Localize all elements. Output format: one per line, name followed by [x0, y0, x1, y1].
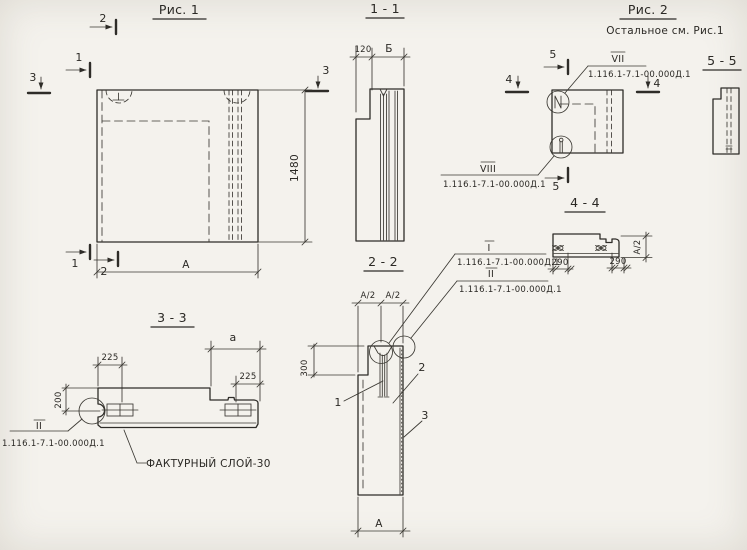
- s33-outline: [79, 388, 258, 428]
- s22-dimension-bottom: А: [351, 497, 410, 537]
- s22-callout-2: 2: [418, 361, 425, 374]
- s11-dim-120: 120: [354, 45, 371, 55]
- lifting-loop-zone-left: [106, 90, 132, 103]
- mark-5-top: 5: [549, 48, 556, 61]
- section-4-4: 4 - 4 290 290 А/2: [389, 195, 652, 343]
- mark-1-bottom: 1: [71, 257, 78, 270]
- fig2-label-vii: VII 1.116.1-7.1-00.000Д.1: [565, 52, 691, 93]
- s33-title: 3 - 3: [157, 310, 187, 325]
- mark-4-left: 4: [505, 73, 512, 86]
- fig1-title: Рис. 1: [159, 2, 199, 17]
- s11-outline: [356, 89, 404, 241]
- s22-dim-a2-left: А/2: [361, 291, 376, 301]
- s44-anchor-right: [596, 246, 607, 251]
- i-number: I: [487, 243, 490, 254]
- s55-title: 5 - 5: [707, 53, 737, 68]
- fig1-dimensions: 1480 А: [94, 87, 312, 278]
- fig2-title: Рис. 2: [628, 2, 668, 17]
- ii-number: II: [488, 269, 494, 280]
- lifting-loop-zone-right: [224, 90, 250, 103]
- s33-note: ФАКТУРНЫЙ СЛОЙ-30: [124, 430, 271, 470]
- figure-1: Рис. 1 2 1 3 3 1 2: [28, 2, 330, 278]
- s33-ii-number: II: [36, 421, 42, 432]
- s44-label-ii: II 1.116.1-7.1-00.000Д.1: [411, 268, 562, 338]
- section-3-3: 3 - 3 а 225 225 200: [2, 310, 271, 470]
- s33-dim-225-left: 225: [101, 353, 118, 363]
- mark-5-bottom: 5: [552, 180, 559, 193]
- s22-dim-300: 300: [300, 359, 310, 376]
- fig2-label-viii: VIII 1.116.1-7.1-00.000Д.1: [441, 156, 554, 190]
- s22-callout-3: 3: [421, 409, 428, 422]
- s44-title: 4 - 4: [570, 195, 600, 210]
- section-2-2: 2 - 2 А/2 А/2 300: [300, 254, 429, 537]
- s22-callouts: 1 2 3: [334, 361, 428, 437]
- s33-anchor-right: [220, 404, 256, 416]
- i-code: 1.116.1-7.1-00.000Д.1: [457, 258, 560, 268]
- fig2-panel: [547, 90, 623, 158]
- drawing-canvas: Рис. 1 2 1 3 3 1 2: [0, 0, 747, 550]
- s22-dimensions-top: А/2 А/2 300: [300, 291, 409, 378]
- s33-dim-225-right: 225: [239, 372, 256, 382]
- s44-dim-a2: А/2: [633, 240, 643, 255]
- drawing-sheet: Рис. 1 2 1 3 3 1 2: [0, 0, 747, 550]
- s11-title: 1 - 1: [370, 1, 400, 16]
- vii-code: 1.116.1-7.1-00.000Д.1: [588, 70, 691, 80]
- vii-number: VII: [611, 54, 624, 65]
- s22-dim-width: А: [375, 518, 383, 530]
- fig1-panel: [97, 90, 258, 242]
- mark-3-right: 3: [322, 64, 329, 77]
- s33-anchor-left: [102, 404, 138, 416]
- mark-2-top: 2: [99, 12, 106, 25]
- mark-1-top: 1: [75, 51, 82, 64]
- viii-code: 1.116.1-7.1-00.000Д.1: [443, 180, 546, 190]
- ii-code: 1.116.1-7.1-00.000Д.1: [459, 285, 562, 295]
- s11-dim-B: Б: [385, 43, 393, 55]
- section-5-5: 5 - 5: [703, 53, 741, 154]
- s44-dim-290-right: 290: [609, 257, 626, 267]
- mark-3-left: 3: [29, 71, 36, 84]
- s33-dim-a: а: [229, 331, 236, 344]
- s22-detail-circle-right: [393, 336, 415, 358]
- s33-dim-200: 200: [54, 391, 64, 408]
- fig2-subtitle: Остальное см. Рис.1: [606, 25, 724, 37]
- section-1-1: 1 - 1 120 Б: [350, 1, 410, 241]
- figure-2: Рис. 2 Остальное см. Рис.1 5 4 4 5: [441, 2, 724, 193]
- fig1-section-marks: 2 1 3 3 1 2: [28, 12, 330, 278]
- s33-note-text: ФАКТУРНЫЙ СЛОЙ-30: [146, 457, 271, 470]
- mark-2-bottom: 2: [100, 265, 107, 278]
- s22-title: 2 - 2: [368, 254, 398, 269]
- s55-outline: [713, 88, 739, 154]
- s22-dim-a2-right: А/2: [386, 291, 401, 301]
- s44-anchor-left: [553, 246, 564, 251]
- viii-number: VIII: [480, 164, 496, 175]
- fig2-detail-circle-bottom: [550, 136, 572, 158]
- s33-ii-code: 1.116.1-7.1-00.000Д.1: [2, 439, 105, 449]
- fig1-dim-width: А: [182, 259, 190, 271]
- fig1-dim-height: 1480: [289, 154, 301, 182]
- s22-callout-1: 1: [334, 396, 341, 409]
- s33-dimensions: а 225 225 200: [54, 331, 266, 415]
- s22-outline: [358, 336, 415, 495]
